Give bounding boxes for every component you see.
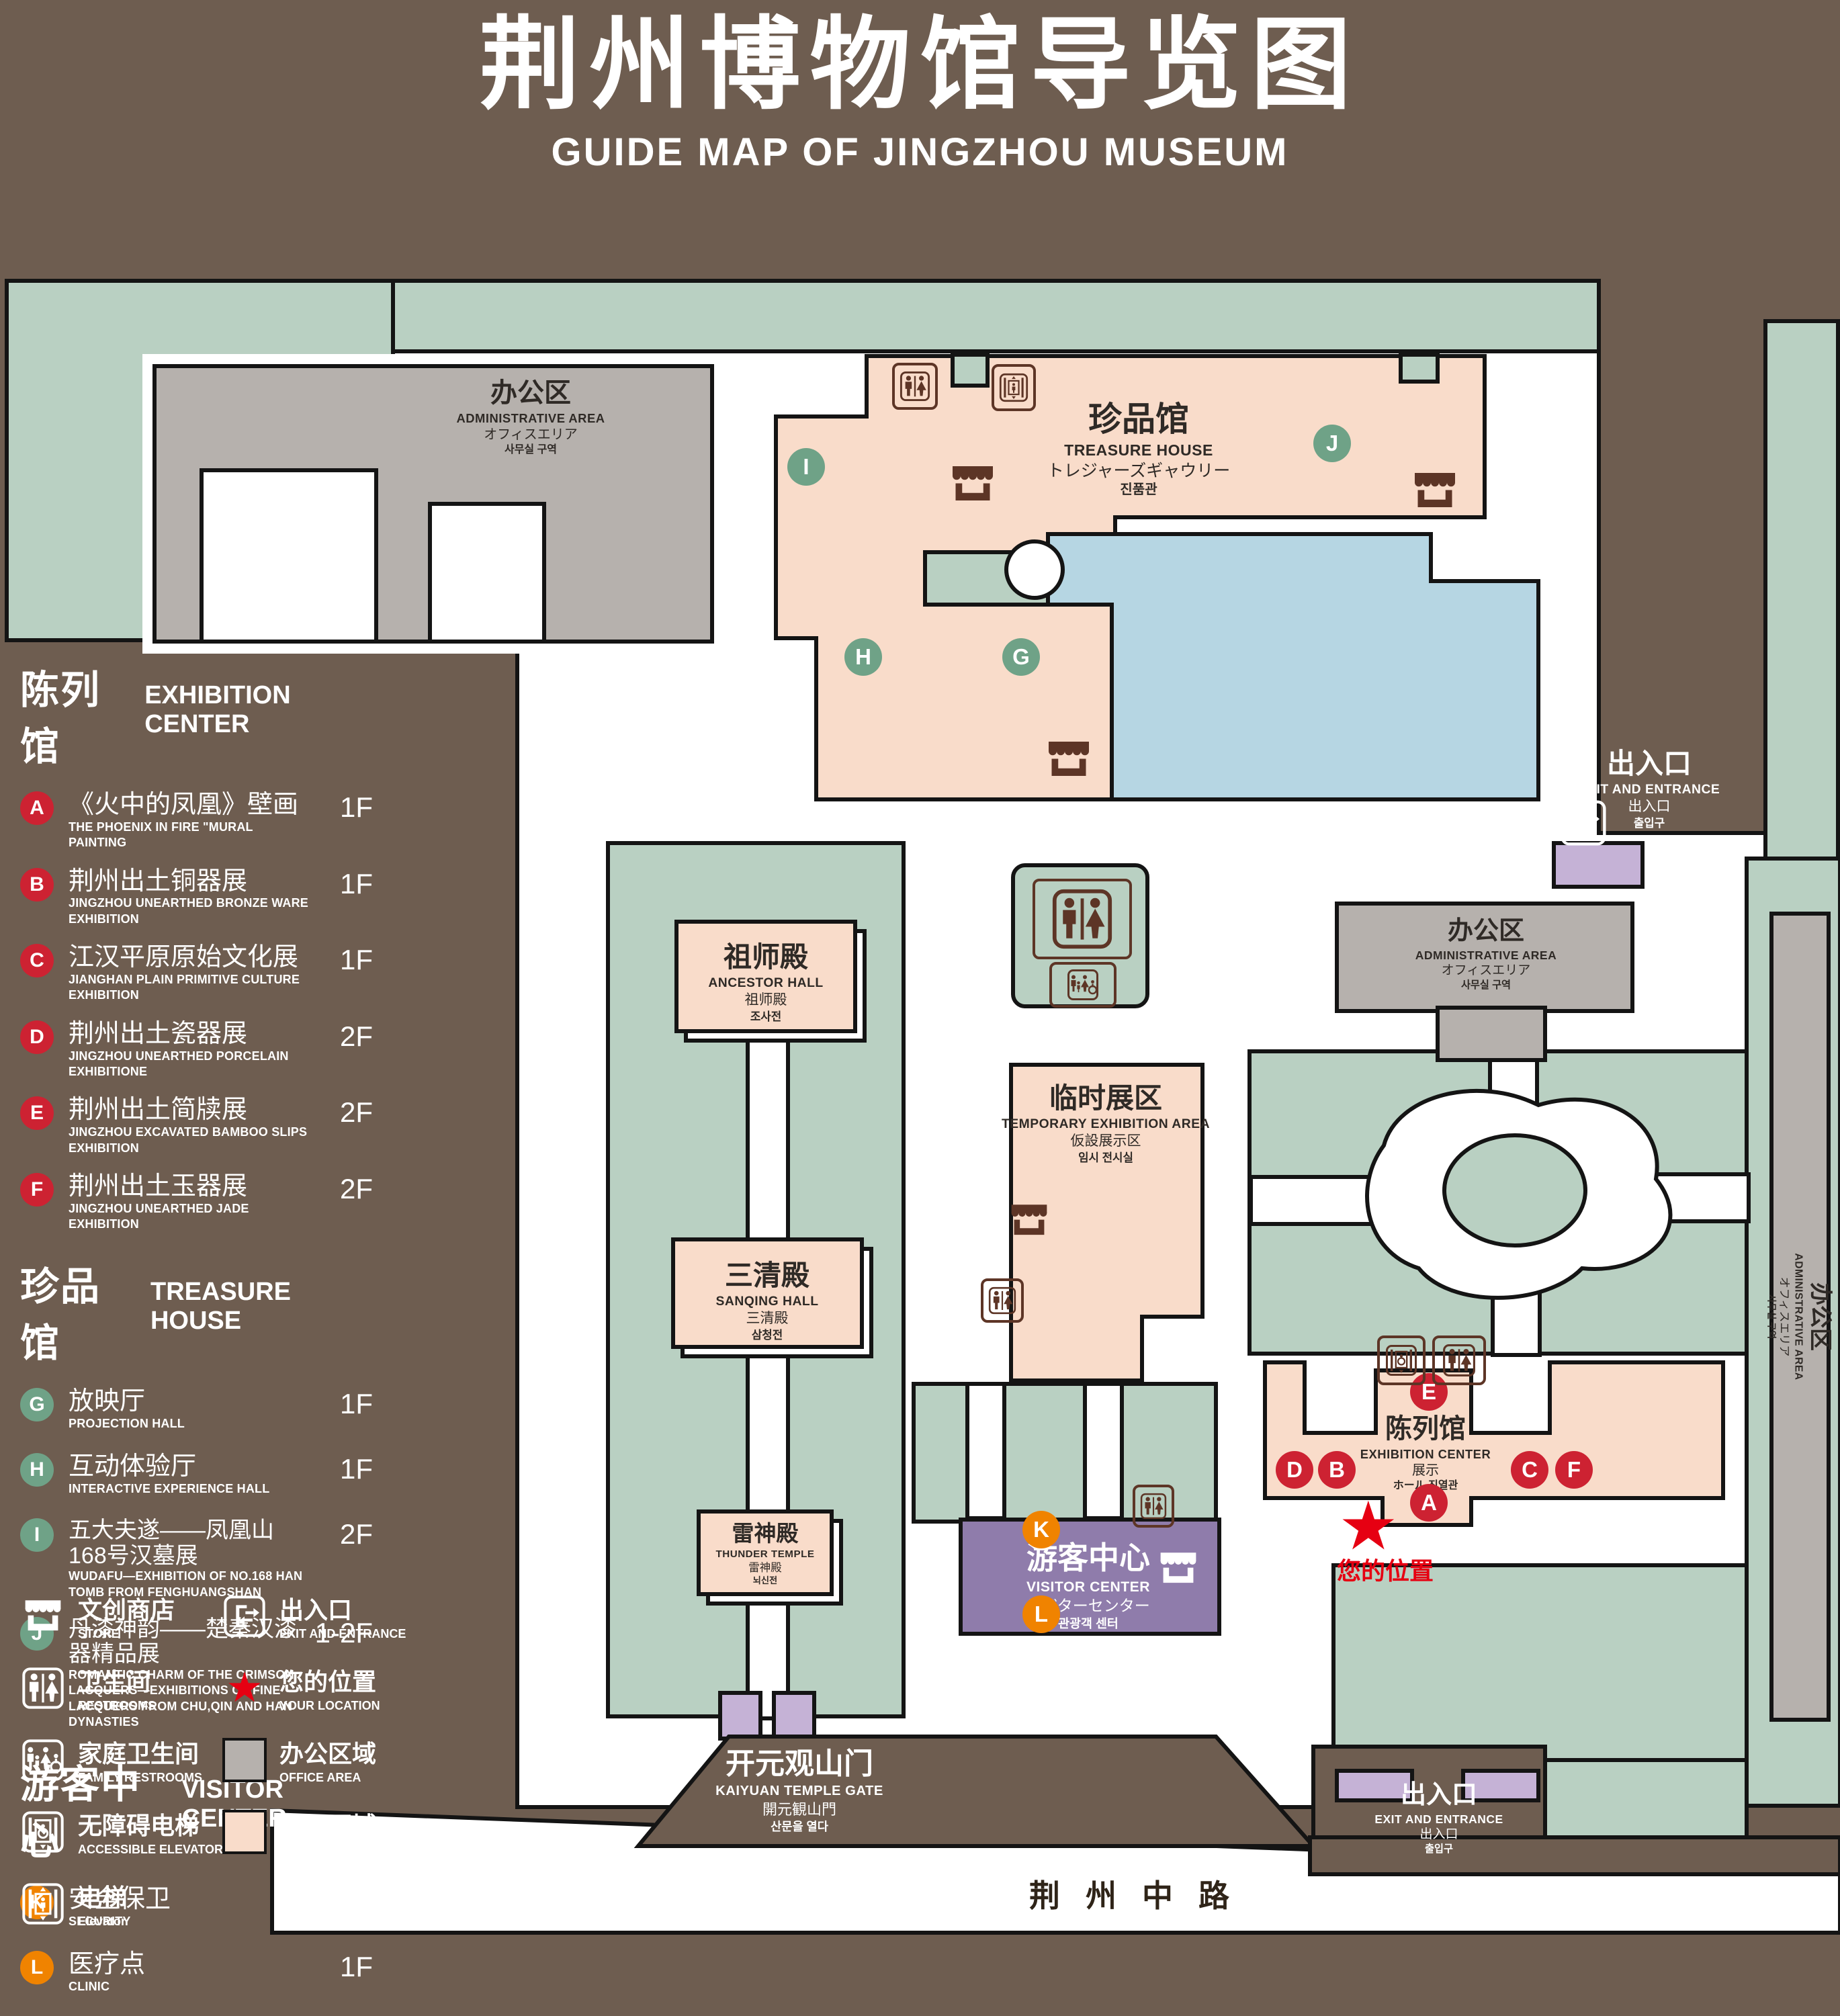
green-southeast-lower: [1538, 1760, 1747, 1844]
central-restroom-tile: [1033, 879, 1132, 959]
label-admin-east: 办公区 ADMINISTRATIVE AREA オフィスエリア 사무실 구역: [1765, 1253, 1835, 1380]
treasure-restroom-tile: [892, 363, 938, 410]
store-icon: [949, 462, 997, 510]
floor-badge: 1F: [340, 944, 373, 976]
store-icon: [1045, 738, 1093, 785]
facility-your-location: ★ 您的位置 YOUR LOCATION: [222, 1663, 406, 1713]
treasure-elevator-tile: [992, 364, 1036, 411]
legend-section-exhibition: 陈列馆 EXHIBITION CENTER: [20, 658, 373, 771]
facility-store: 文创商店 STORE: [20, 1591, 223, 1641]
map-marker-b[interactable]: B: [1318, 1451, 1356, 1489]
marker-h: H: [20, 1453, 54, 1487]
green-top-strip: [393, 281, 1599, 351]
label-thunder-temple: 雷神殿 THUNDER TEMPLE 雷神殿 뇌신전: [716, 1520, 815, 1587]
visitor-restroom-tile: [1133, 1485, 1174, 1528]
floor-badge: 1F: [340, 1388, 373, 1420]
facility-elevator: 电梯 Elevator: [20, 1878, 223, 1929]
admin-nw-court-1: [202, 470, 376, 642]
pond-arc: [1006, 541, 1063, 598]
floor-badge: 1F: [340, 791, 373, 824]
label-admin-northwest: 办公区 ADMINISTRATIVE AREA オフィスエリア 사무실 구역: [457, 376, 605, 457]
family-restroom-icon: [1065, 969, 1100, 1001]
label-treasure-house: 珍品馆 TREASURE HOUSE トレジャーズギャウリー 진품관: [1047, 398, 1231, 499]
guide-map-page: { "title": {"zh": "荆州博物馆导览图", "en": "GUI…: [0, 0, 1840, 1967]
marker-l: L: [20, 1951, 54, 1984]
store-icon: [1411, 469, 1459, 517]
marker-i: I: [20, 1518, 54, 1552]
central-family-restroom-tile: [1049, 962, 1116, 1008]
office-area-swatch: [222, 1738, 267, 1782]
legend-item-b[interactable]: B 荆州出土铜器展 JINGZHOU UNEARTHED BRONZE WARE…: [20, 868, 373, 928]
marker-e: E: [20, 1096, 54, 1130]
elevator-icon: [999, 372, 1028, 403]
garden-island: [1444, 1135, 1585, 1245]
gate-pillar-east: [774, 1693, 814, 1739]
temporary-restroom-tile: [981, 1278, 1024, 1323]
floor-badge: 2F: [340, 1096, 373, 1129]
exit-icon: [222, 1593, 267, 1639]
map-marker-j[interactable]: J: [1313, 425, 1351, 462]
restroom-icon: [1140, 1493, 1167, 1520]
restroom-icon: [1050, 888, 1114, 950]
map-marker-f[interactable]: F: [1555, 1451, 1593, 1489]
facility-legend-right-column: 出入口 EXIT AND ENTRANCE ★ 您的位置 YOUR LOCATI…: [222, 1591, 406, 1878]
restroom-icon: [988, 1286, 1016, 1315]
legend-item-a[interactable]: A 《火中的凤凰》壁画 THE PHOENIX IN FIRE "MURAL P…: [20, 791, 373, 851]
label-kaiyuan-gate: 开元观山门 KAIYUAN TEMPLE GATE 開元観山門 산문을 열다: [715, 1745, 883, 1835]
label-admin-central: 办公区 ADMINISTRATIVE AREA オフィスエリア 사무실 구역: [1415, 915, 1557, 992]
map-marker-d[interactable]: D: [1276, 1451, 1313, 1489]
restroom-icon: [900, 371, 930, 402]
label-exit-south: 出入口 EXIT AND ENTRANCE 出入口 출입구: [1374, 1779, 1503, 1856]
legend-section-treasure: 珍品馆 TREASURE HOUSE: [20, 1255, 373, 1368]
path-visitor-1: [967, 1384, 1004, 1518]
store-icon: [1157, 1549, 1200, 1591]
floor-badge: 2F: [340, 1518, 373, 1550]
family-restroom-icon: [20, 1737, 66, 1783]
admin-nw-court-2: [430, 504, 544, 642]
legend-item-e[interactable]: E 荆州出土简牍展 JINGZHOU EXCAVATED BAMBOO SLIP…: [20, 1096, 373, 1156]
facility-family-restrooms: 家庭卫生间 FAMILY RESTROOMS: [20, 1735, 223, 1785]
map-marker-k[interactable]: K: [1022, 1511, 1060, 1548]
display-area-swatch: [222, 1810, 267, 1854]
label-exhibition-center: 陈列馆 EXHIBITION CENTER 展示 ホール 진열관: [1360, 1412, 1491, 1493]
floor-badge: 2F: [340, 1173, 373, 1205]
restroom-icon: [20, 1665, 66, 1711]
map-marker-g[interactable]: G: [1002, 638, 1040, 676]
floor-badge: 1F: [340, 1951, 373, 1983]
legend-item-i[interactable]: I 五大夫遂——凤凰山168号汉墓展 WUDAFU—EXHIBITION OF …: [20, 1518, 373, 1600]
label-ancestor-hall: 祖师殿 ANCESTOR HALL 祖师殿 조사전: [708, 939, 823, 1024]
exhibition-restroom-tile: [1432, 1335, 1486, 1385]
gate-pillar-west: [720, 1693, 760, 1739]
floor-badge: 2F: [340, 1020, 373, 1053]
facility-accessible-elevator: 无障碍电梯 ACCESSIBLE ELEVATOR: [20, 1806, 223, 1857]
map-marker-l[interactable]: L: [1022, 1595, 1060, 1633]
your-location-star-icon: ★: [222, 1665, 267, 1711]
green-right-upper: [1765, 321, 1838, 859]
facility-office-area: 办公区域 OFFICE AREA: [222, 1735, 406, 1785]
path-visitor-2: [1085, 1384, 1122, 1518]
your-location-star: ★: [1338, 1493, 1399, 1560]
marker-c: C: [20, 944, 54, 977]
map-marker-c[interactable]: C: [1511, 1451, 1548, 1489]
marker-d: D: [20, 1020, 54, 1054]
green-southeast: [1333, 1565, 1747, 1760]
map-marker-h[interactable]: H: [844, 638, 882, 676]
facility-restrooms: 卫生间 RESTROOMS: [20, 1663, 223, 1713]
restroom-icon: [1442, 1344, 1477, 1377]
accessible-elevator-icon: [1385, 1344, 1417, 1376]
exhibition-elevator-tile: [1377, 1335, 1426, 1385]
label-sanqing-hall: 三清殿 SANQING HALL 三清殿 삼청전: [716, 1258, 819, 1343]
exit-icon: [1560, 799, 1607, 850]
admin-central-annex: [1438, 1008, 1545, 1060]
treasure-notch-2: [1401, 355, 1438, 382]
legend-item-g[interactable]: G 放映厅 PROJECTION HALL 1F: [20, 1388, 373, 1436]
legend-item-h[interactable]: H 互动体验厅 INTERACTIVE EXPERIENCE HALL 1F: [20, 1453, 373, 1501]
path-courtyard-1: [748, 1031, 788, 1243]
facility-exit: 出入口 EXIT AND ENTRANCE: [222, 1591, 406, 1641]
legend-item-d[interactable]: D 荆州出土瓷器展 JINGZHOU UNEARTHED PORCELAIN E…: [20, 1020, 373, 1080]
legend-item-l[interactable]: L 医疗点 CLINIC 1F: [20, 1951, 373, 1999]
facility-display-area: 展示区域 DISPLAY AREA: [222, 1806, 406, 1857]
path-courtyard-2: [748, 1347, 788, 1515]
legend-item-c[interactable]: C 江汉平原原始文化展 JIANGHAN PLAIN PRIMITIVE CUL…: [20, 944, 373, 1004]
map-marker-a[interactable]: A: [1410, 1484, 1448, 1522]
marker-g: G: [20, 1388, 54, 1421]
store-icon: [20, 1593, 66, 1639]
elevator-icon: [20, 1881, 66, 1927]
marker-a: A: [20, 791, 54, 825]
your-location-label: 您的位置: [1337, 1552, 1434, 1587]
label-road: 荆州中路: [1029, 1872, 1255, 1916]
floor-badge: 1F: [340, 1453, 373, 1485]
label-temporary-exhibition: 临时展区 TEMPORARY EXHIBITION AREA 仮設展示区 임시 …: [1002, 1080, 1210, 1166]
treasure-notch-1: [953, 355, 988, 386]
floor-badge: 1F: [340, 868, 373, 900]
map-marker-i[interactable]: I: [787, 448, 825, 486]
facility-legend-left-column: 文创商店 STORE 卫生间 RESTROOMS 家庭卫生间 FAMILY RE…: [20, 1591, 223, 1950]
floor-badge: 1F: [340, 1886, 373, 1918]
legend-item-f[interactable]: F 荆州出土玉器展 JINGZHOU UNEARTHED JADE EXHIBI…: [20, 1173, 373, 1233]
accessible-elevator-icon: [20, 1809, 66, 1855]
store-icon: [1008, 1201, 1051, 1243]
marker-b: B: [20, 868, 54, 902]
marker-f: F: [20, 1173, 54, 1207]
